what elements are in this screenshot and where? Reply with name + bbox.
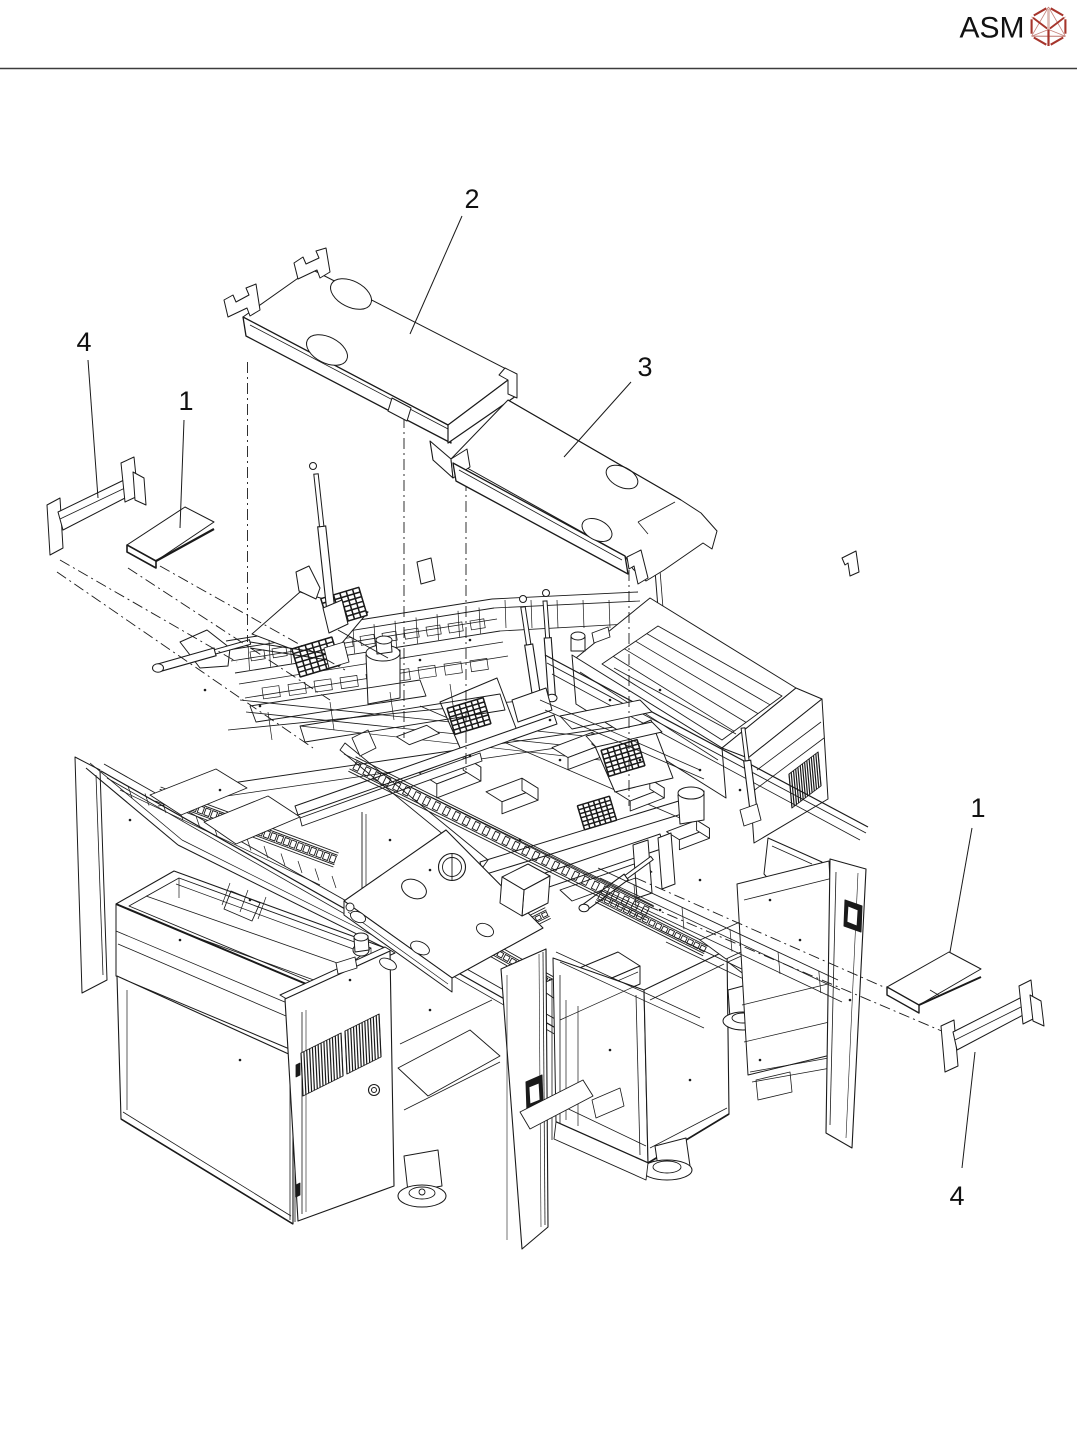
svg-text:4: 4: [949, 1181, 964, 1211]
svg-text:3: 3: [637, 352, 652, 382]
svg-text:1: 1: [970, 793, 985, 823]
svg-text:ASM: ASM: [959, 12, 1024, 45]
svg-text:4: 4: [76, 327, 91, 357]
svg-text:1: 1: [178, 386, 193, 416]
svg-text:2: 2: [464, 184, 479, 214]
